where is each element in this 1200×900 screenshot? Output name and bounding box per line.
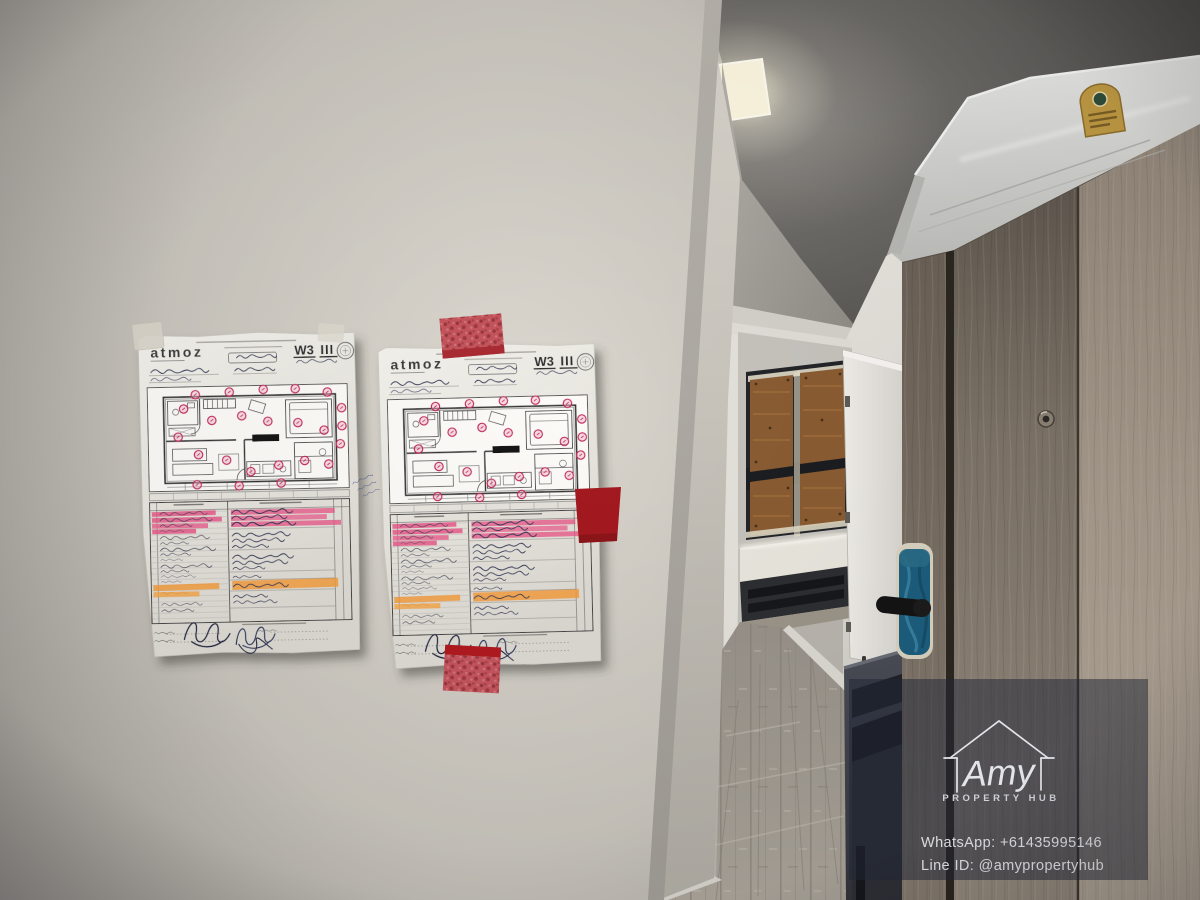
vignette (0, 0, 1200, 900)
photo-canvas: atmoz W3 III (0, 0, 1200, 900)
apartment-photo: atmoz W3 III (0, 0, 1200, 900)
